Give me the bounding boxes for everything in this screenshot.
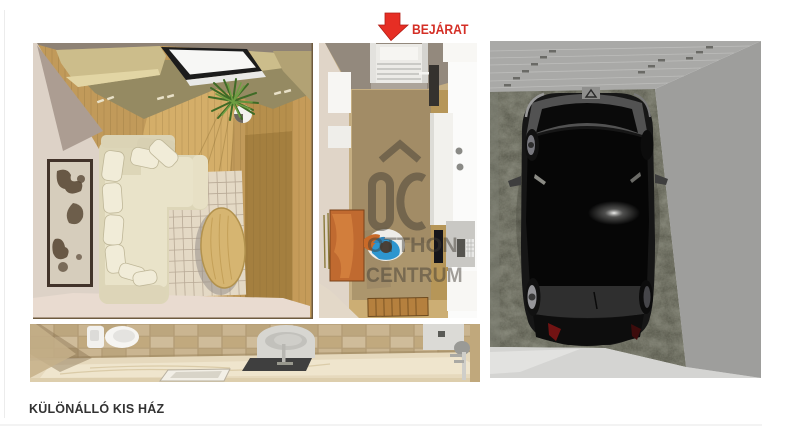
svg-text:OTTHON: OTTHON <box>367 233 458 257</box>
svg-text:CENTRUM: CENTRUM <box>366 263 463 287</box>
